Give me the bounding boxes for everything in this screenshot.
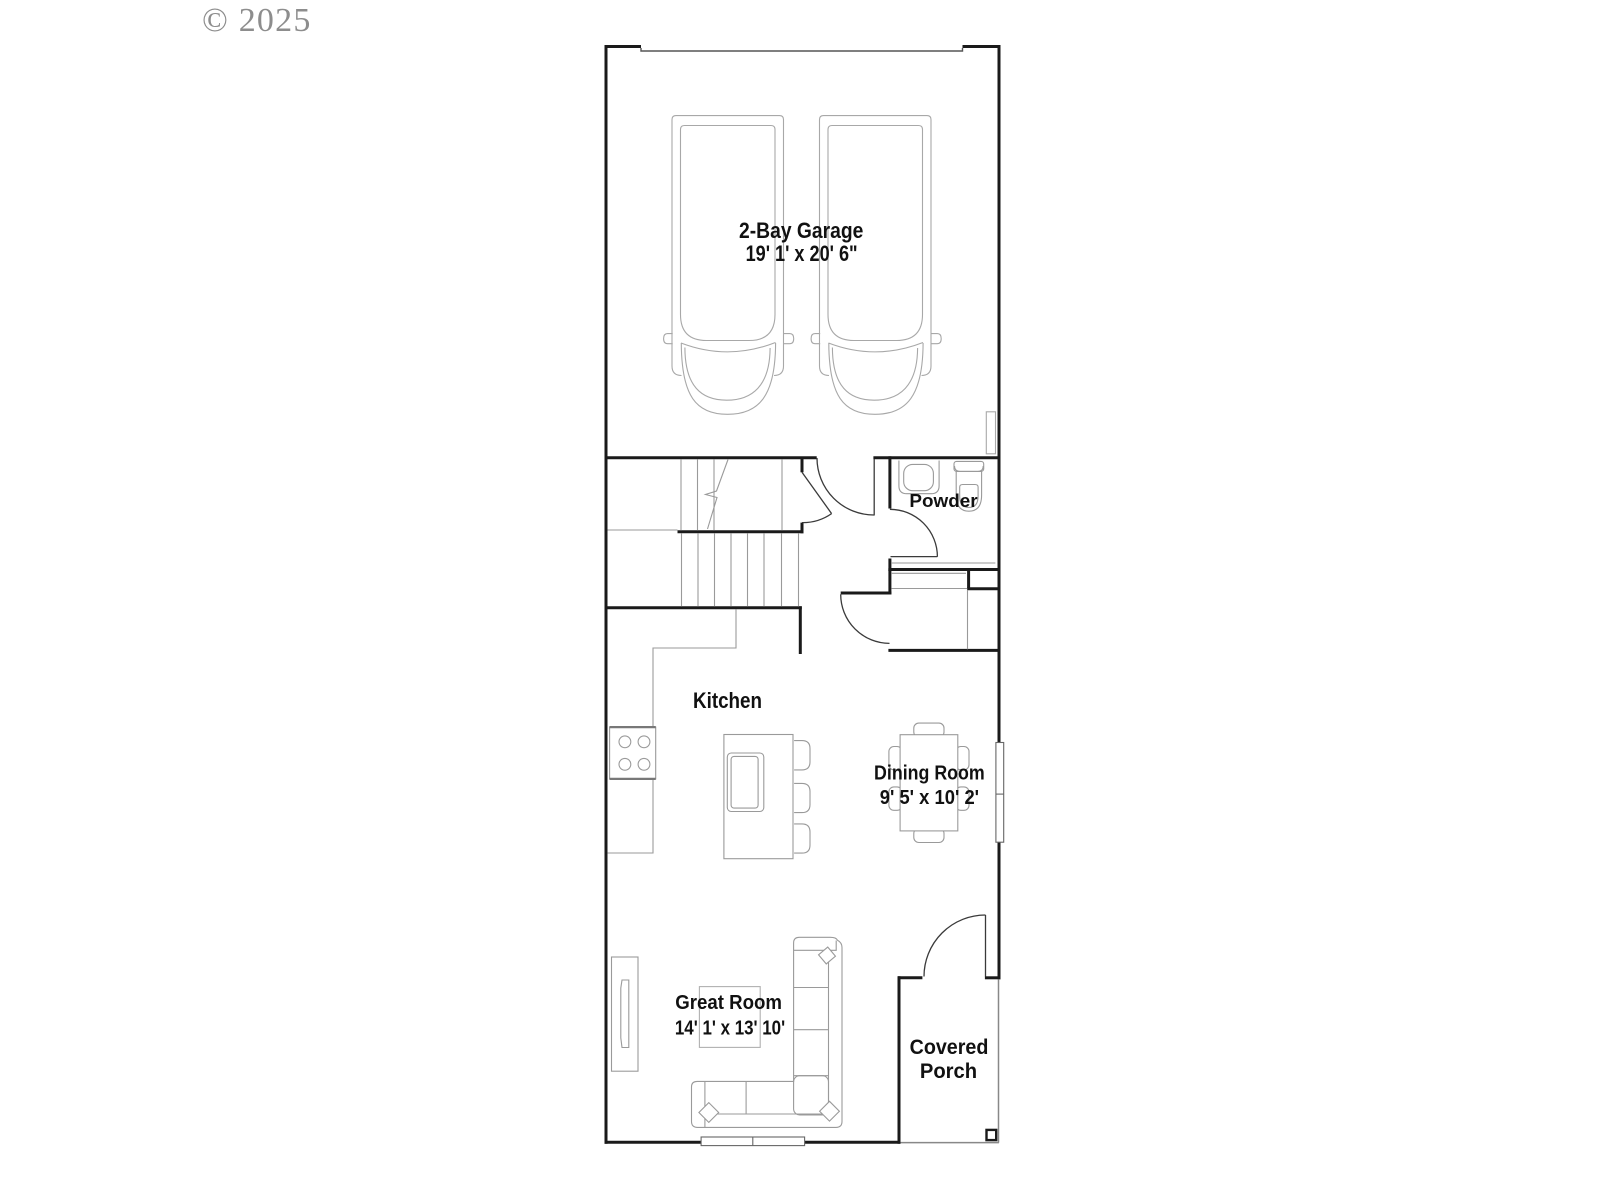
svg-text:9' 5' x 10' 2': 9' 5' x 10' 2' (880, 787, 979, 809)
svg-text:© 2025: © 2025 (202, 2, 312, 39)
svg-text:Great Room: Great Room (675, 992, 782, 1014)
svg-text:Powder: Powder (909, 491, 977, 511)
svg-text:Kitchen: Kitchen (693, 688, 762, 713)
svg-text:2-Bay Garage: 2-Bay Garage (739, 218, 863, 243)
svg-text:Porch: Porch (920, 1060, 977, 1083)
svg-text:14' 1' x 13' 10': 14' 1' x 13' 10' (675, 1018, 785, 1040)
svg-text:Dining Room: Dining Room (874, 763, 985, 785)
svg-text:19' 1' x 20' 6": 19' 1' x 20' 6" (746, 241, 858, 266)
svg-text:Covered: Covered (910, 1036, 989, 1059)
